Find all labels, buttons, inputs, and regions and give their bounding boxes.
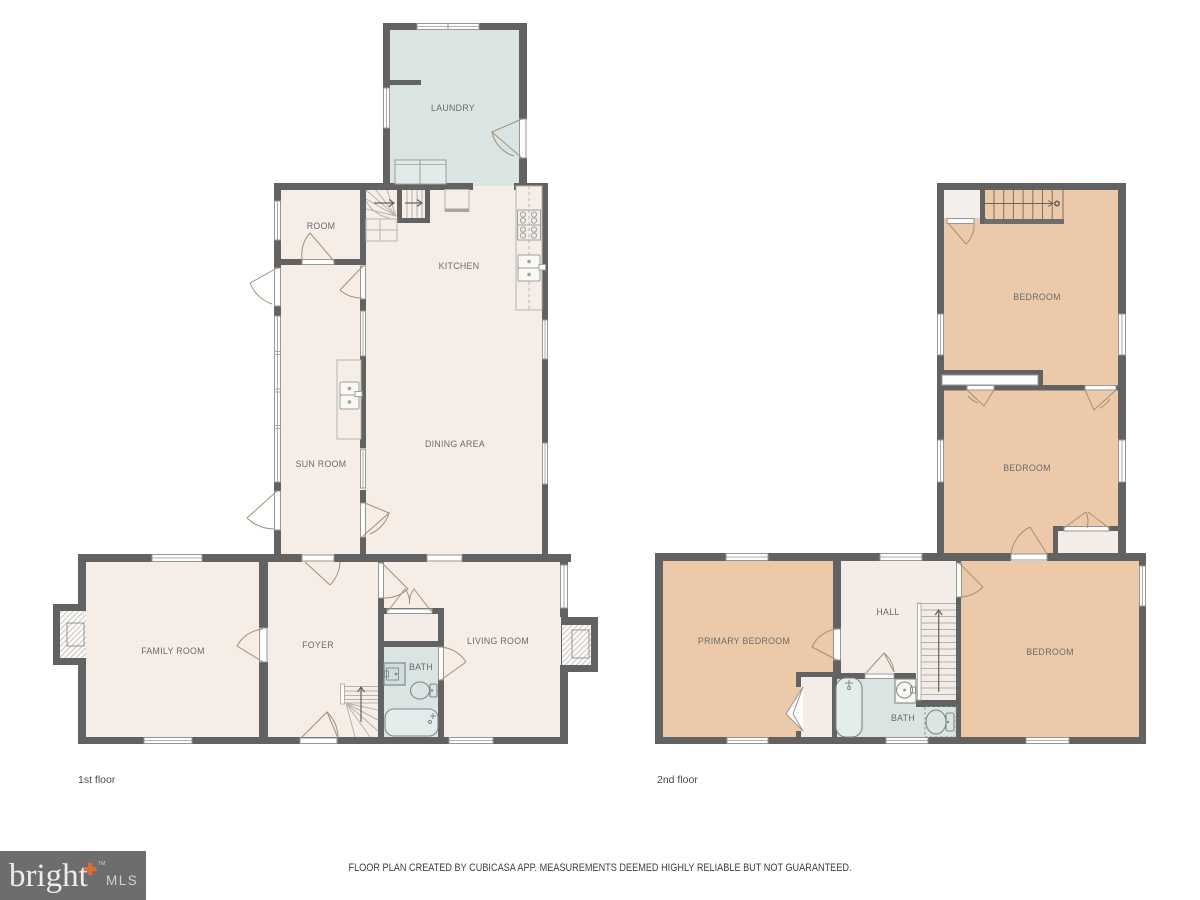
svg-text:TM: TM bbox=[98, 861, 106, 867]
svg-text:BATH: BATH bbox=[891, 713, 915, 723]
svg-text:MLS: MLS bbox=[106, 873, 138, 888]
svg-text:FAMILY ROOM: FAMILY ROOM bbox=[141, 646, 205, 656]
svg-text:BATH: BATH bbox=[409, 662, 433, 672]
svg-text:LIVING ROOM: LIVING ROOM bbox=[467, 636, 529, 646]
svg-text:SUN ROOM: SUN ROOM bbox=[296, 459, 347, 469]
svg-text:DINING AREA: DINING AREA bbox=[425, 439, 485, 449]
svg-text:BEDROOM: BEDROOM bbox=[1003, 463, 1051, 473]
svg-text:LAUNDRY: LAUNDRY bbox=[431, 103, 475, 113]
svg-text:FLOOR PLAN CREATED BY CUBICASA: FLOOR PLAN CREATED BY CUBICASA APP. MEAS… bbox=[349, 862, 852, 874]
svg-text:1st floor: 1st floor bbox=[78, 774, 116, 786]
svg-text:ROOM: ROOM bbox=[307, 221, 336, 231]
svg-text:KITCHEN: KITCHEN bbox=[439, 261, 480, 271]
svg-text:bright: bright bbox=[9, 858, 88, 894]
svg-text:HALL: HALL bbox=[876, 607, 899, 617]
svg-text:FOYER: FOYER bbox=[302, 640, 334, 650]
svg-text:2nd floor: 2nd floor bbox=[657, 774, 698, 786]
svg-text:BEDROOM: BEDROOM bbox=[1026, 647, 1074, 657]
svg-text:PRIMARY BEDROOM: PRIMARY BEDROOM bbox=[698, 636, 790, 646]
svg-text:BEDROOM: BEDROOM bbox=[1013, 292, 1061, 302]
